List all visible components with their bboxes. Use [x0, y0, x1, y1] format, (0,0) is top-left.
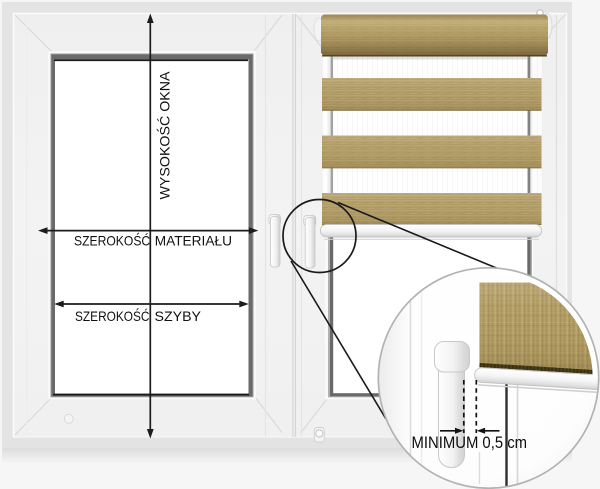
svg-text:MATERIAŁU: MATERIAŁU: [155, 232, 232, 248]
svg-text:SZEROKOŚĆ: SZEROKOŚĆ: [75, 307, 150, 324]
svg-text:WYSOKOŚĆ OKNA: WYSOKOŚĆ OKNA: [156, 71, 173, 200]
svg-text:SZYBY: SZYBY: [155, 308, 202, 324]
svg-text:SZEROKOŚĆ: SZEROKOŚĆ: [74, 231, 150, 248]
svg-text:MINIMUM 0,5 cm: MINIMUM 0,5 cm: [412, 434, 528, 452]
